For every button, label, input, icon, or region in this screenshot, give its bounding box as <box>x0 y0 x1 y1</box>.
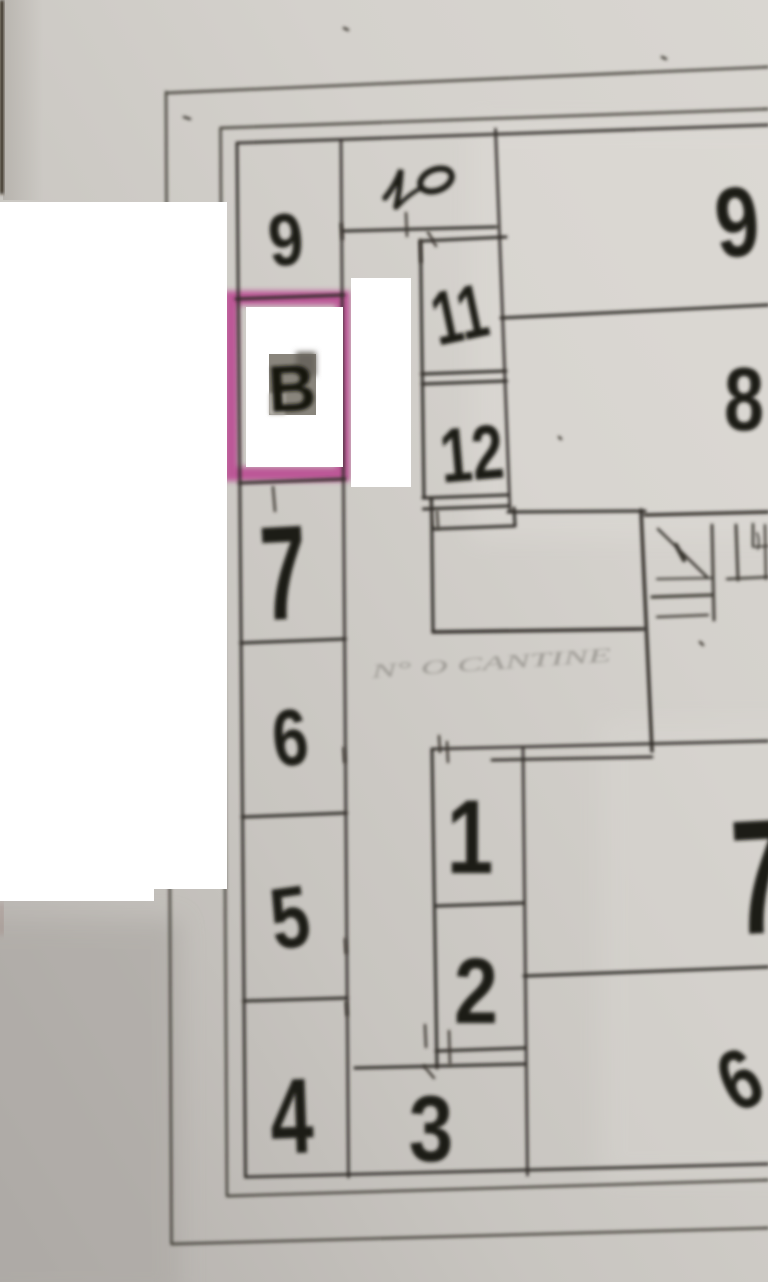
svg-text:2: 2 <box>454 940 498 1043</box>
svg-text:12: 12 <box>436 409 507 499</box>
svg-text:1: 1 <box>447 779 494 896</box>
svg-text:8: 8 <box>724 349 764 449</box>
svg-text:4: 4 <box>268 1056 315 1177</box>
svg-text:7: 7 <box>257 497 311 649</box>
svg-text:B: B <box>266 350 317 426</box>
svg-text:9: 9 <box>265 197 307 283</box>
svg-text:3: 3 <box>409 1077 453 1182</box>
